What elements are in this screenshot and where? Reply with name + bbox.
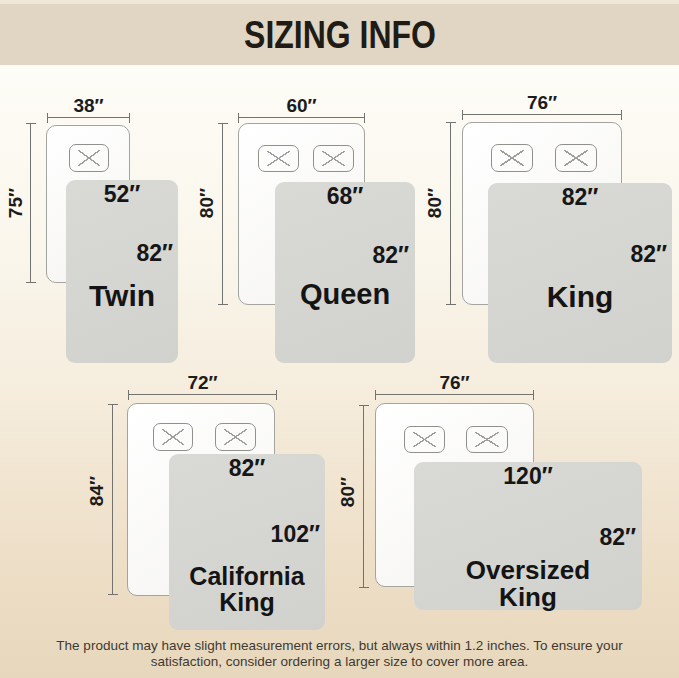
blanket-california-king: 82″ 102″ California King (169, 454, 325, 630)
size-name-twin: Twin (66, 280, 178, 312)
blanket-length-label: 102″ (271, 521, 320, 548)
length-dimension-line (112, 404, 113, 595)
width-dimension-line (47, 117, 130, 118)
size-name-king: King (488, 281, 672, 313)
sizing-info-page: SIZING INFO 38″ 75″ 52″ 82″ Twin 60″ 80″… (0, 0, 679, 678)
bed-width-label: 76″ (462, 92, 622, 114)
width-dimension-line (238, 117, 365, 118)
bed-length-label: 80″ (424, 178, 446, 228)
size-name-queen: Queen (275, 279, 415, 309)
blanket-length-label: 82″ (630, 241, 667, 268)
blanket-queen: 68″ 82″ Queen (275, 182, 415, 363)
bed-length-label: 80″ (196, 178, 218, 228)
pillow-icon (313, 145, 354, 172)
pillow-icon (69, 144, 109, 172)
length-dimension-line (222, 123, 223, 305)
length-dimension-line (450, 122, 451, 305)
width-dimension-line (128, 394, 277, 395)
width-dimension-line (462, 114, 622, 115)
length-dimension-line (363, 405, 364, 588)
blanket-width-label: 120″ (414, 463, 642, 490)
length-dimension-line (30, 123, 31, 283)
blanket-width-label: 52″ (66, 181, 178, 208)
footer-note: The product may have slight measurement … (0, 638, 679, 670)
blanket-oversized-king: 120″ 82″ Oversized King (414, 462, 642, 610)
footer-note-line1: The product may have slight measurement … (0, 638, 679, 654)
blanket-twin: 52″ 82″ Twin (66, 180, 178, 363)
bed-width-label: 60″ (238, 95, 365, 117)
blanket-king: 82″ 82″ King (488, 183, 672, 363)
footer-note-line2: satisfaction, consider ordering a larger… (0, 654, 679, 670)
blanket-length-label: 82″ (136, 240, 173, 267)
blanket-length-label: 82″ (599, 524, 636, 551)
size-name-california-king: California King (169, 563, 325, 616)
blanket-length-label: 82″ (372, 242, 409, 269)
blanket-width-label: 68″ (275, 183, 415, 210)
bed-width-label: 72″ (128, 372, 277, 394)
pillow-icon (555, 144, 597, 172)
blanket-width-label: 82″ (488, 184, 672, 211)
pillow-icon (215, 423, 256, 451)
pillow-icon (258, 145, 299, 172)
pillow-icon (404, 426, 445, 453)
header-bar: SIZING INFO (0, 4, 679, 65)
pillow-icon (153, 423, 193, 451)
bed-length-label: 84″ (86, 466, 108, 516)
size-name-oversized-king: Oversized King (443, 557, 613, 612)
pillow-icon (491, 144, 533, 172)
bed-length-label: 75″ (5, 178, 27, 228)
blanket-width-label: 82″ (169, 455, 325, 482)
bed-width-label: 76″ (375, 372, 534, 394)
pillow-icon (466, 426, 508, 453)
page-title: SIZING INFO (244, 13, 436, 57)
width-dimension-line (375, 394, 534, 395)
bed-width-label: 38″ (47, 95, 130, 117)
bed-length-label: 80″ (337, 467, 359, 517)
